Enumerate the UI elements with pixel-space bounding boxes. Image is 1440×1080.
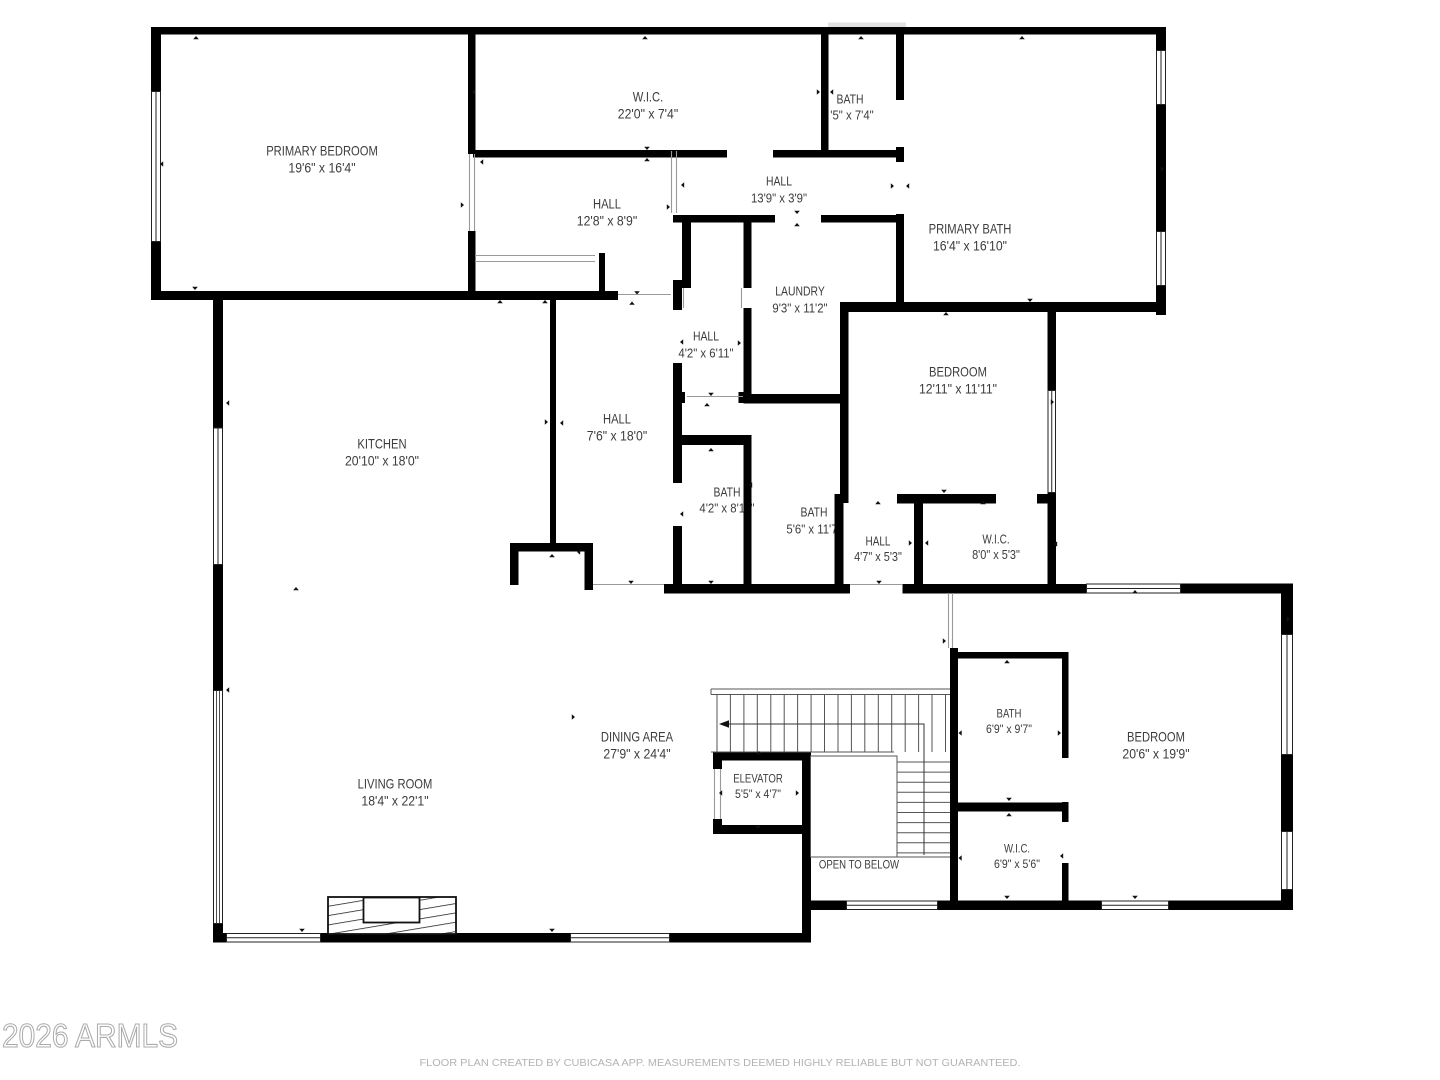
svg-text:13'9" x 3'9": 13'9" x 3'9"	[751, 191, 807, 206]
svg-text:LIVING ROOM: LIVING ROOM	[358, 776, 433, 792]
svg-text:6'9" x 5'6": 6'9" x 5'6"	[994, 857, 1040, 871]
svg-text:W.I.C.: W.I.C.	[1004, 842, 1030, 856]
svg-text:LAUNDRY: LAUNDRY	[775, 284, 825, 299]
svg-text:20'6" x 19'9": 20'6" x 19'9"	[1122, 746, 1189, 762]
svg-text:FLOOR PLAN CREATED BY CUBICASA: FLOOR PLAN CREATED BY CUBICASA APP. MEAS…	[420, 1057, 1021, 1069]
svg-text:4'7" x 5'3": 4'7" x 5'3"	[854, 550, 902, 564]
svg-text:6'9" x 9'7": 6'9" x 9'7"	[986, 722, 1032, 736]
svg-text:2026 ARMLS: 2026 ARMLS	[2, 1017, 178, 1054]
svg-text:BATH: BATH	[837, 92, 864, 107]
svg-text:KITCHEN: KITCHEN	[357, 436, 406, 452]
svg-text:OPEN TO BELOW: OPEN TO BELOW	[819, 858, 900, 872]
svg-text:19'6" x 16'4": 19'6" x 16'4"	[288, 160, 355, 176]
svg-text:12'11" x 11'11": 12'11" x 11'11"	[919, 381, 997, 397]
svg-text:BATH: BATH	[801, 505, 828, 520]
svg-text:18'4" x 22'1": 18'4" x 22'1"	[361, 793, 428, 809]
svg-text:ELEVATOR: ELEVATOR	[733, 772, 783, 786]
svg-text:BEDROOM: BEDROOM	[1127, 729, 1185, 745]
svg-text:HALL: HALL	[603, 411, 631, 427]
svg-text:W.I.C.: W.I.C.	[982, 533, 1009, 547]
svg-text:20'10" x 18'0": 20'10" x 18'0"	[345, 453, 419, 469]
svg-text:'5" x 7'4": '5" x 7'4"	[830, 108, 874, 123]
svg-text:HALL: HALL	[593, 196, 621, 212]
svg-text:DINING AREA: DINING AREA	[601, 729, 674, 745]
svg-text:16'4" x 16'10": 16'4" x 16'10"	[933, 238, 1007, 254]
svg-text:BATH: BATH	[997, 707, 1022, 721]
svg-text:PRIMARY BATH: PRIMARY BATH	[929, 221, 1012, 237]
svg-text:5'5" x 4'7": 5'5" x 4'7"	[735, 787, 781, 801]
svg-text:27'9" x 24'4": 27'9" x 24'4"	[603, 746, 670, 762]
svg-text:5'6" x 11'7": 5'6" x 11'7"	[786, 522, 842, 537]
svg-text:22'0" x 7'4": 22'0" x 7'4"	[618, 106, 678, 122]
svg-text:8'0" x 5'3": 8'0" x 5'3"	[972, 548, 1020, 562]
svg-text:W.I.C.: W.I.C.	[633, 89, 664, 105]
svg-text:7'6" x 18'0": 7'6" x 18'0"	[587, 428, 647, 444]
svg-text:PRIMARY BEDROOM: PRIMARY BEDROOM	[266, 143, 378, 159]
svg-text:9'3" x 11'2": 9'3" x 11'2"	[772, 301, 828, 316]
svg-text:HALL: HALL	[766, 174, 792, 189]
svg-text:BATH: BATH	[714, 485, 741, 500]
svg-text:BEDROOM: BEDROOM	[929, 364, 987, 380]
svg-text:4'2" x 6'11": 4'2" x 6'11"	[678, 346, 734, 361]
svg-text:12'8" x 8'9": 12'8" x 8'9"	[577, 213, 637, 229]
svg-text:HALL: HALL	[866, 535, 891, 549]
svg-text:HALL: HALL	[693, 329, 719, 344]
